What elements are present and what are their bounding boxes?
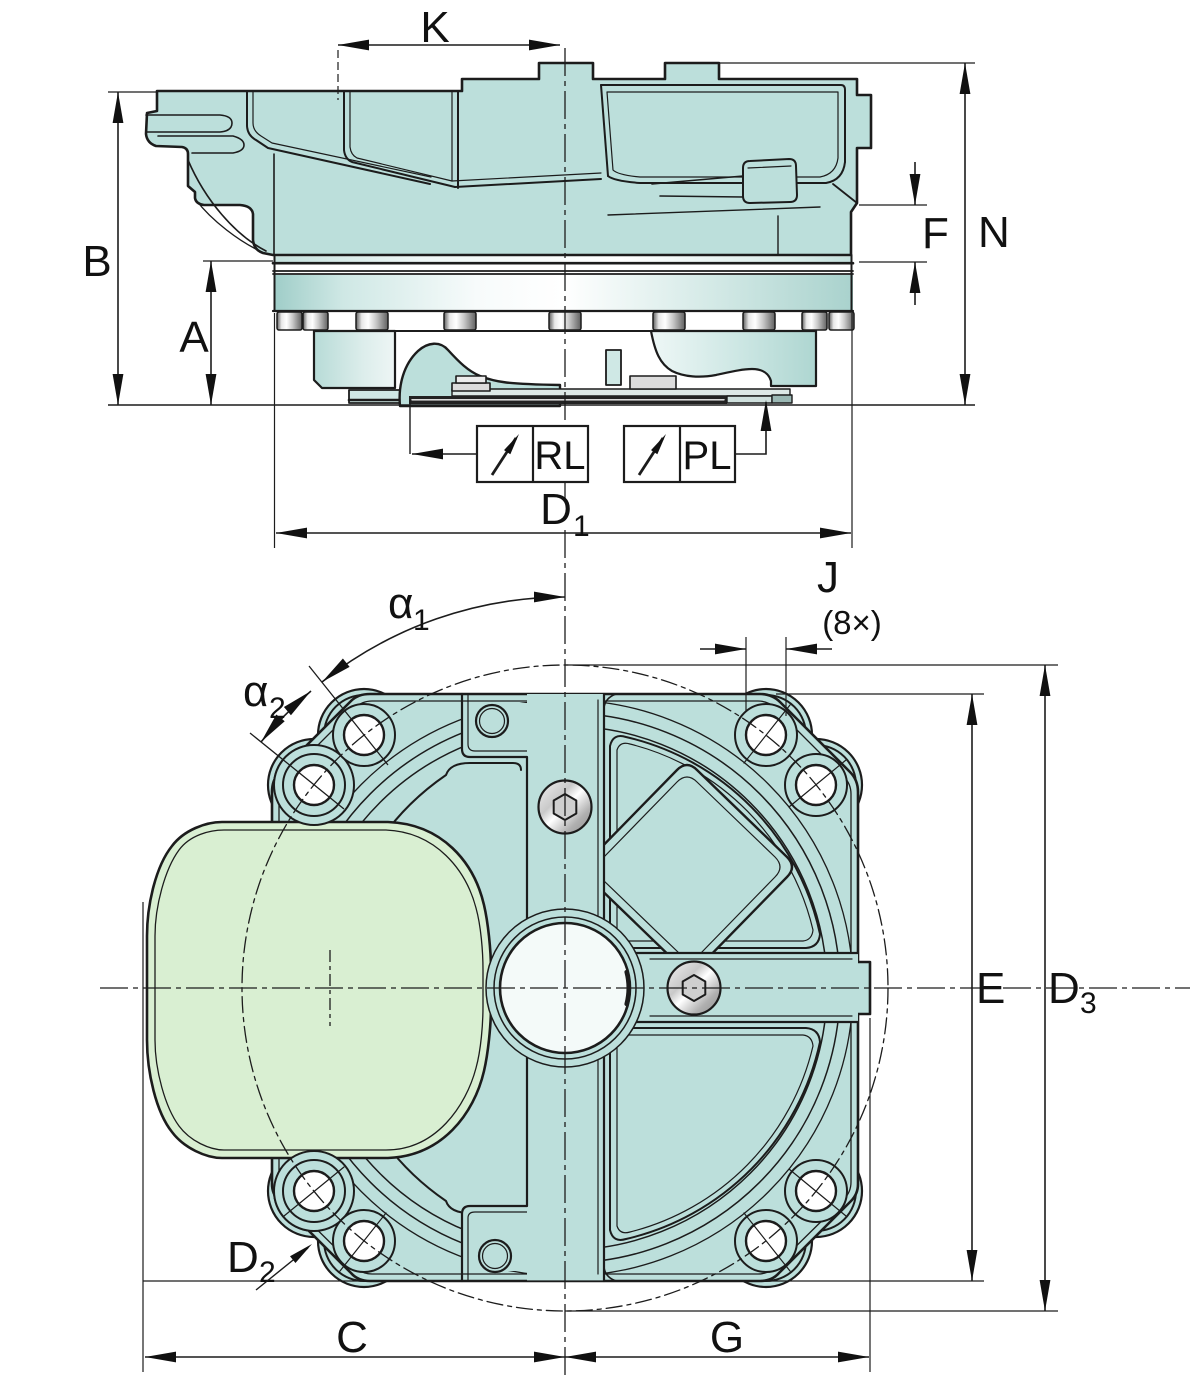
svg-text:C: C [336,1313,368,1362]
svg-text:α: α [243,667,268,716]
svg-text:1: 1 [413,604,430,637]
svg-text:(8×): (8×) [822,604,882,641]
svg-text:RL: RL [534,434,585,478]
svg-text:D: D [227,1233,259,1282]
svg-text:α: α [388,579,413,628]
svg-text:G: G [710,1313,744,1362]
svg-text:A: A [179,313,209,362]
svg-text:3: 3 [1080,987,1097,1020]
svg-text:2: 2 [259,1256,276,1289]
svg-text:1: 1 [573,510,590,543]
svg-text:PL: PL [683,434,732,478]
svg-text:2: 2 [269,692,286,725]
svg-text:E: E [976,964,1005,1013]
svg-text:D: D [1048,964,1080,1013]
svg-text:K: K [420,3,449,52]
svg-text:D: D [540,485,572,534]
svg-text:N: N [978,208,1010,257]
svg-text:B: B [82,237,111,286]
svg-text:F: F [922,209,949,258]
svg-text:J: J [817,553,839,602]
